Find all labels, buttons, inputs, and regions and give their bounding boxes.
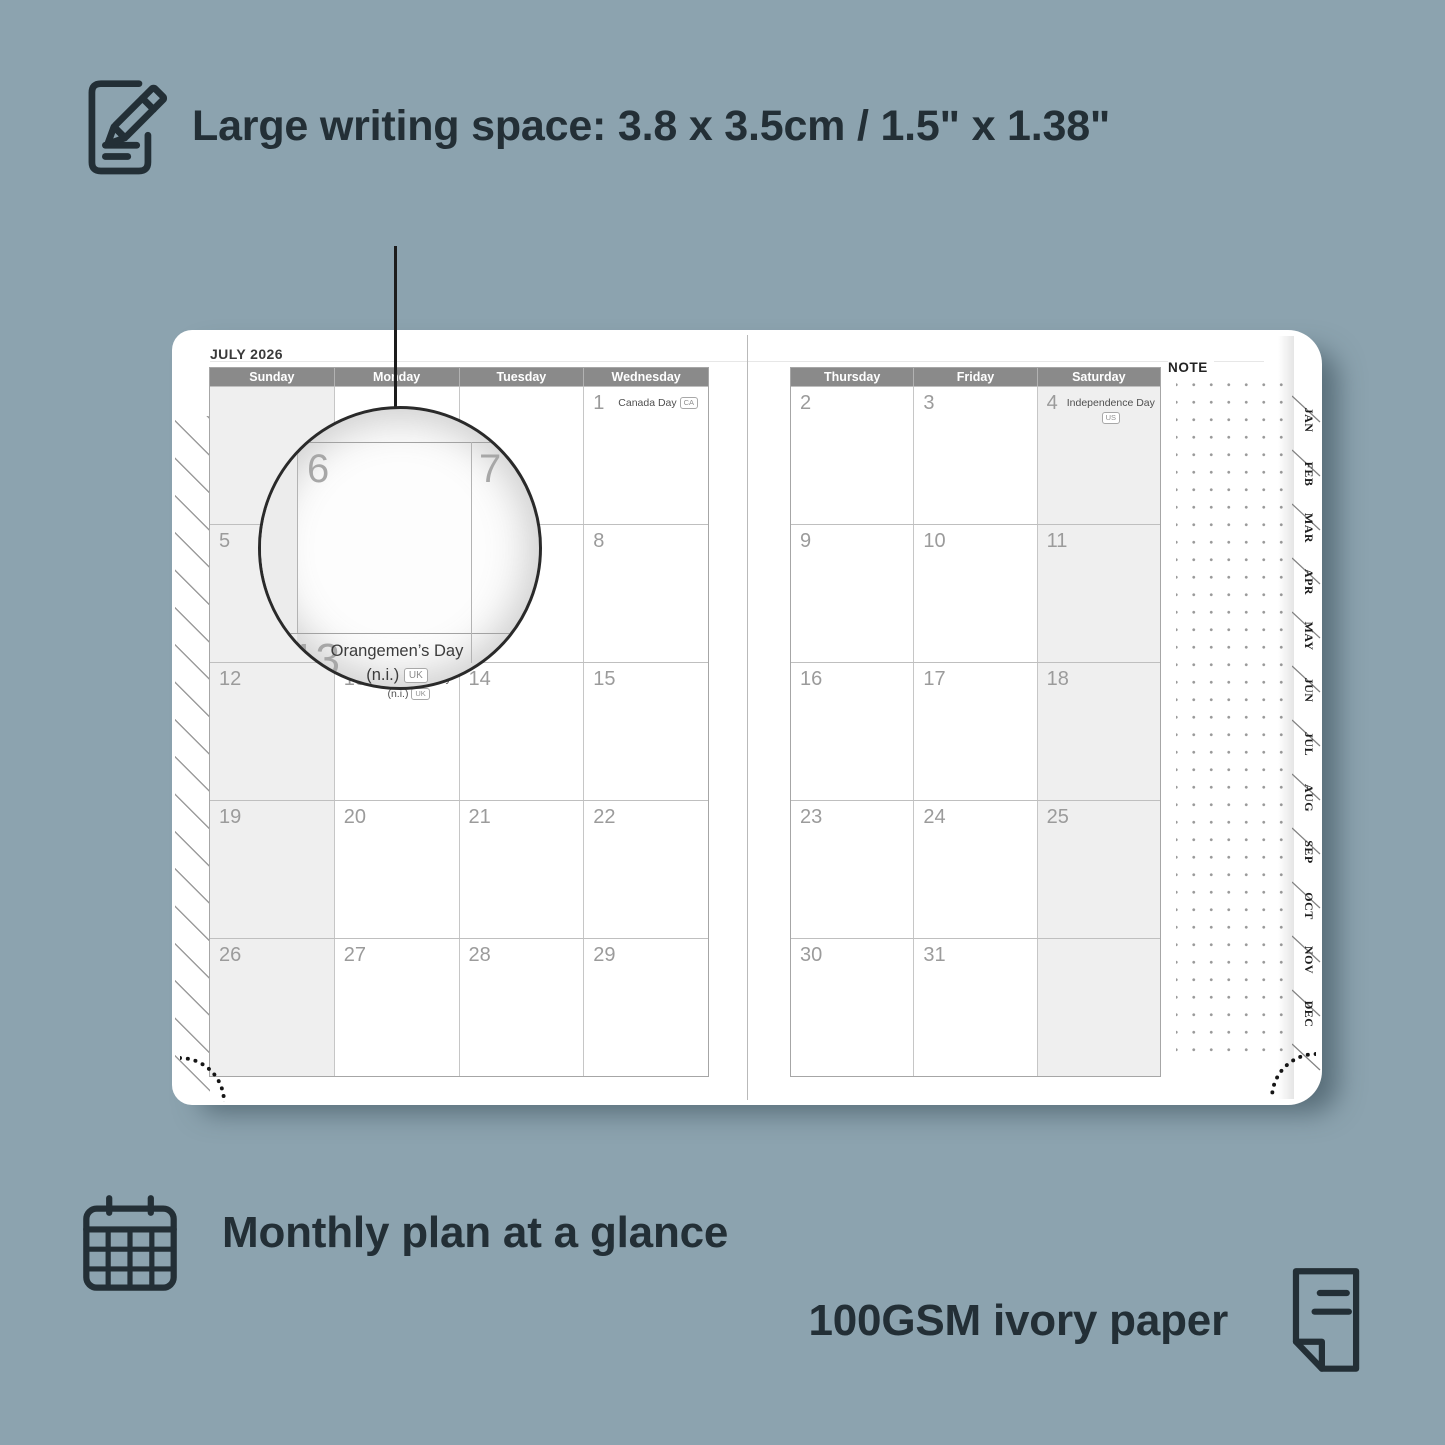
day-number: 8: [593, 530, 604, 553]
week-row: 91011: [791, 524, 1160, 662]
day-number: 31: [923, 944, 945, 967]
day-number: 26: [219, 944, 241, 967]
holiday-label: Independence Day US: [1065, 396, 1157, 426]
magnified-day-7: 7: [479, 447, 501, 492]
day-number: 17: [923, 668, 945, 691]
notepad-pencil-icon: [74, 68, 186, 180]
magnified-grid-line: [297, 442, 298, 633]
magnified-grid-line: [471, 442, 472, 663]
day-header-wednesday: Wednesday: [583, 368, 708, 386]
day-number: 21: [469, 806, 491, 829]
day-number: 4: [1047, 392, 1058, 415]
day-cell-25: 25: [1037, 801, 1160, 938]
month-tab-oct: OCT: [1302, 892, 1316, 920]
month-tab-mar: MAR: [1302, 513, 1316, 543]
magnified-grid-line: [261, 442, 539, 443]
country-badge-us: US: [1102, 412, 1120, 424]
day-cell-3: 3: [913, 387, 1036, 524]
month-tab-jun: JUN: [1302, 678, 1316, 703]
day-cell-19: 19: [210, 801, 334, 938]
day-cell-17: 17: [913, 663, 1036, 800]
stitch-arc-bottom-right: [1270, 1052, 1316, 1098]
country-badge-ca: CA: [680, 397, 698, 409]
title-rule: [210, 361, 1264, 362]
month-tab-jul: JUL: [1302, 732, 1316, 756]
stitch-arc-bottom-left: [180, 1056, 226, 1102]
day-cell-2: 2: [791, 387, 913, 524]
day-cell-15: 15: [583, 663, 708, 800]
day-header-tuesday: Tuesday: [459, 368, 584, 386]
day-number: 10: [923, 530, 945, 553]
day-cell-empty: [1037, 939, 1160, 1076]
day-header-friday: Friday: [913, 368, 1036, 386]
day-number: 29: [593, 944, 615, 967]
month-title: JULY 2026: [210, 346, 283, 362]
day-header-saturday: Saturday: [1037, 368, 1160, 386]
day-cell-30: 30: [791, 939, 913, 1076]
note-label: NOTE: [1168, 360, 1214, 375]
note-dot-grid: [1176, 370, 1288, 1064]
month-tabs-index: JANFEBMARAPRMAYJUNJULAUGSEPOCTNOVDEC: [1292, 330, 1322, 1105]
magnified-grid-line: [261, 633, 539, 634]
magnified-holiday-label: Orangemen’s Day (n.i.) UK: [297, 640, 497, 688]
day-cell-10: 10: [913, 525, 1036, 662]
day-number: 18: [1047, 668, 1069, 691]
day-cell-11: 11: [1037, 525, 1160, 662]
country-badge-uk: UK: [404, 668, 428, 683]
month-tab-nov: NOV: [1302, 946, 1316, 974]
day-cell-18: 18: [1037, 663, 1160, 800]
day-number: 25: [1047, 806, 1069, 829]
day-number: 9: [800, 530, 811, 553]
month-tab-dec: DEC: [1302, 1001, 1316, 1028]
day-number: 27: [344, 944, 366, 967]
day-number: 19: [219, 806, 241, 829]
left-page-edge-hatch: [175, 416, 210, 1092]
day-header-thursday: Thursday: [791, 368, 913, 386]
week-row: 26272829: [210, 938, 708, 1076]
day-number: 11: [1047, 530, 1068, 553]
month-tab-may: MAY: [1302, 621, 1316, 650]
month-tab-feb: FEB: [1302, 462, 1316, 487]
day-number: 16: [800, 668, 822, 691]
week-row: 3031: [791, 938, 1160, 1076]
day-cell-26: 26: [210, 939, 334, 1076]
day-number: 23: [800, 806, 822, 829]
day-header-sunday: Sunday: [210, 368, 334, 386]
feature-paper-label: 100GSM ivory paper: [809, 1296, 1228, 1346]
day-number: 3: [923, 392, 934, 415]
day-number: 12: [219, 668, 241, 691]
day-cell-27: 27: [334, 939, 459, 1076]
day-cell-23: 23: [791, 801, 913, 938]
day-number: 28: [469, 944, 491, 967]
day-cell-16: 16: [791, 663, 913, 800]
day-number: 5: [219, 530, 230, 553]
paper-sheet-icon: [1278, 1264, 1372, 1378]
day-cell-28: 28: [459, 939, 584, 1076]
week-row: 19202122: [210, 800, 708, 938]
magnifier-circle: 6 7 13 Orangemen’s Day (n.i.) UK: [258, 406, 542, 690]
month-tab-aug: AUG: [1302, 784, 1316, 812]
week-row: 232425: [791, 800, 1160, 938]
weekday-header-row: SundayMondayTuesdayWednesday: [210, 368, 708, 386]
week-row: 234Independence Day US: [791, 386, 1160, 524]
planner-product-image: { "top_feature": { "icon": "notepad-penc…: [0, 0, 1445, 1445]
day-number: 1: [593, 392, 604, 415]
day-cell-1: 1Canada Day CA: [583, 387, 708, 524]
holiday-label: Canada Day CA: [611, 396, 705, 411]
day-number: 20: [344, 806, 366, 829]
week-row: 161718: [791, 662, 1160, 800]
month-tab-apr: APR: [1302, 569, 1316, 595]
month-tab-jan: JAN: [1302, 408, 1316, 433]
day-number: 24: [923, 806, 945, 829]
day-cell-31: 31: [913, 939, 1036, 1076]
feature-writing-space-label: Large writing space: 3.8 x 3.5cm / 1.5" …: [192, 102, 1110, 151]
day-cell-24: 24: [913, 801, 1036, 938]
day-cell-21: 21: [459, 801, 584, 938]
calendar-grid-right-page: ThursdayFridaySaturday234Independence Da…: [790, 367, 1161, 1077]
month-tab-sep: SEP: [1302, 840, 1316, 864]
day-cell-29: 29: [583, 939, 708, 1076]
weekday-header-row: ThursdayFridaySaturday: [791, 368, 1160, 386]
day-number: 2: [800, 392, 811, 415]
magnifier-pointer-line: [394, 246, 397, 409]
feature-monthly-plan-label: Monthly plan at a glance: [222, 1208, 728, 1258]
day-cell-8: 8: [583, 525, 708, 662]
day-number: 15: [593, 668, 615, 691]
day-number: 22: [593, 806, 615, 829]
day-cell-22: 22: [583, 801, 708, 938]
day-cell-20: 20: [334, 801, 459, 938]
spread-spine: [747, 335, 748, 1100]
day-number: 30: [800, 944, 822, 967]
magnified-day-6: 6: [307, 447, 329, 492]
calendar-grid-icon: [78, 1192, 182, 1296]
country-badge-uk: UK: [411, 688, 429, 700]
day-cell-9: 9: [791, 525, 913, 662]
day-cell-4: 4Independence Day US: [1037, 387, 1160, 524]
